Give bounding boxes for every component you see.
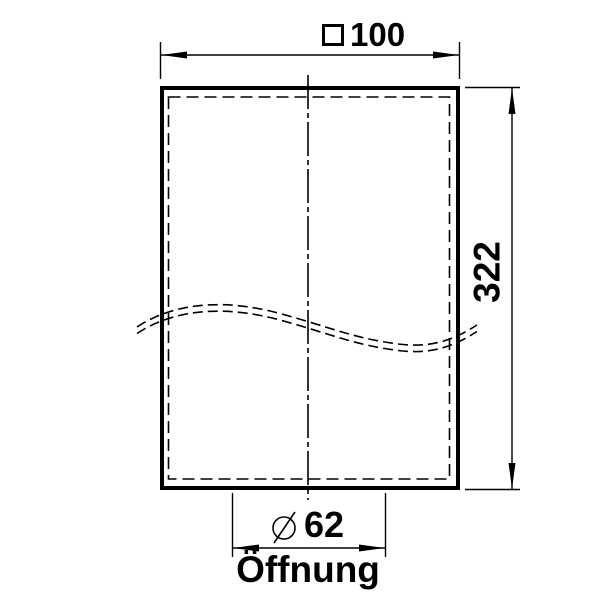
opening-dimension-value: 62 bbox=[304, 507, 344, 543]
break-wave-line bbox=[137, 305, 477, 352]
inner-hidden-outline bbox=[169, 97, 450, 479]
technical-drawing-canvas: 100 322 62 Öffnung bbox=[0, 0, 600, 600]
square-icon bbox=[322, 24, 344, 46]
diameter-icon bbox=[270, 505, 300, 545]
width-arrow-right-icon bbox=[433, 52, 459, 59]
height-arrow-top-icon bbox=[509, 88, 516, 114]
height-dimension-text: 322 bbox=[469, 241, 506, 303]
opening-dimension-text: 62 bbox=[270, 505, 344, 545]
width-dimension-text: 100 bbox=[322, 18, 405, 51]
opening-label: Öffnung bbox=[236, 551, 380, 588]
body-outline bbox=[162, 88, 458, 488]
break-wave-upper bbox=[137, 305, 477, 345]
height-arrow-bottom-icon bbox=[509, 463, 516, 489]
height-dimension-value: 322 bbox=[467, 241, 508, 303]
width-arrow-left-icon bbox=[161, 52, 187, 59]
width-dimension-value: 100 bbox=[350, 18, 405, 51]
break-wave-lower bbox=[137, 311, 477, 351]
width-dimension-lines bbox=[161, 42, 460, 79]
